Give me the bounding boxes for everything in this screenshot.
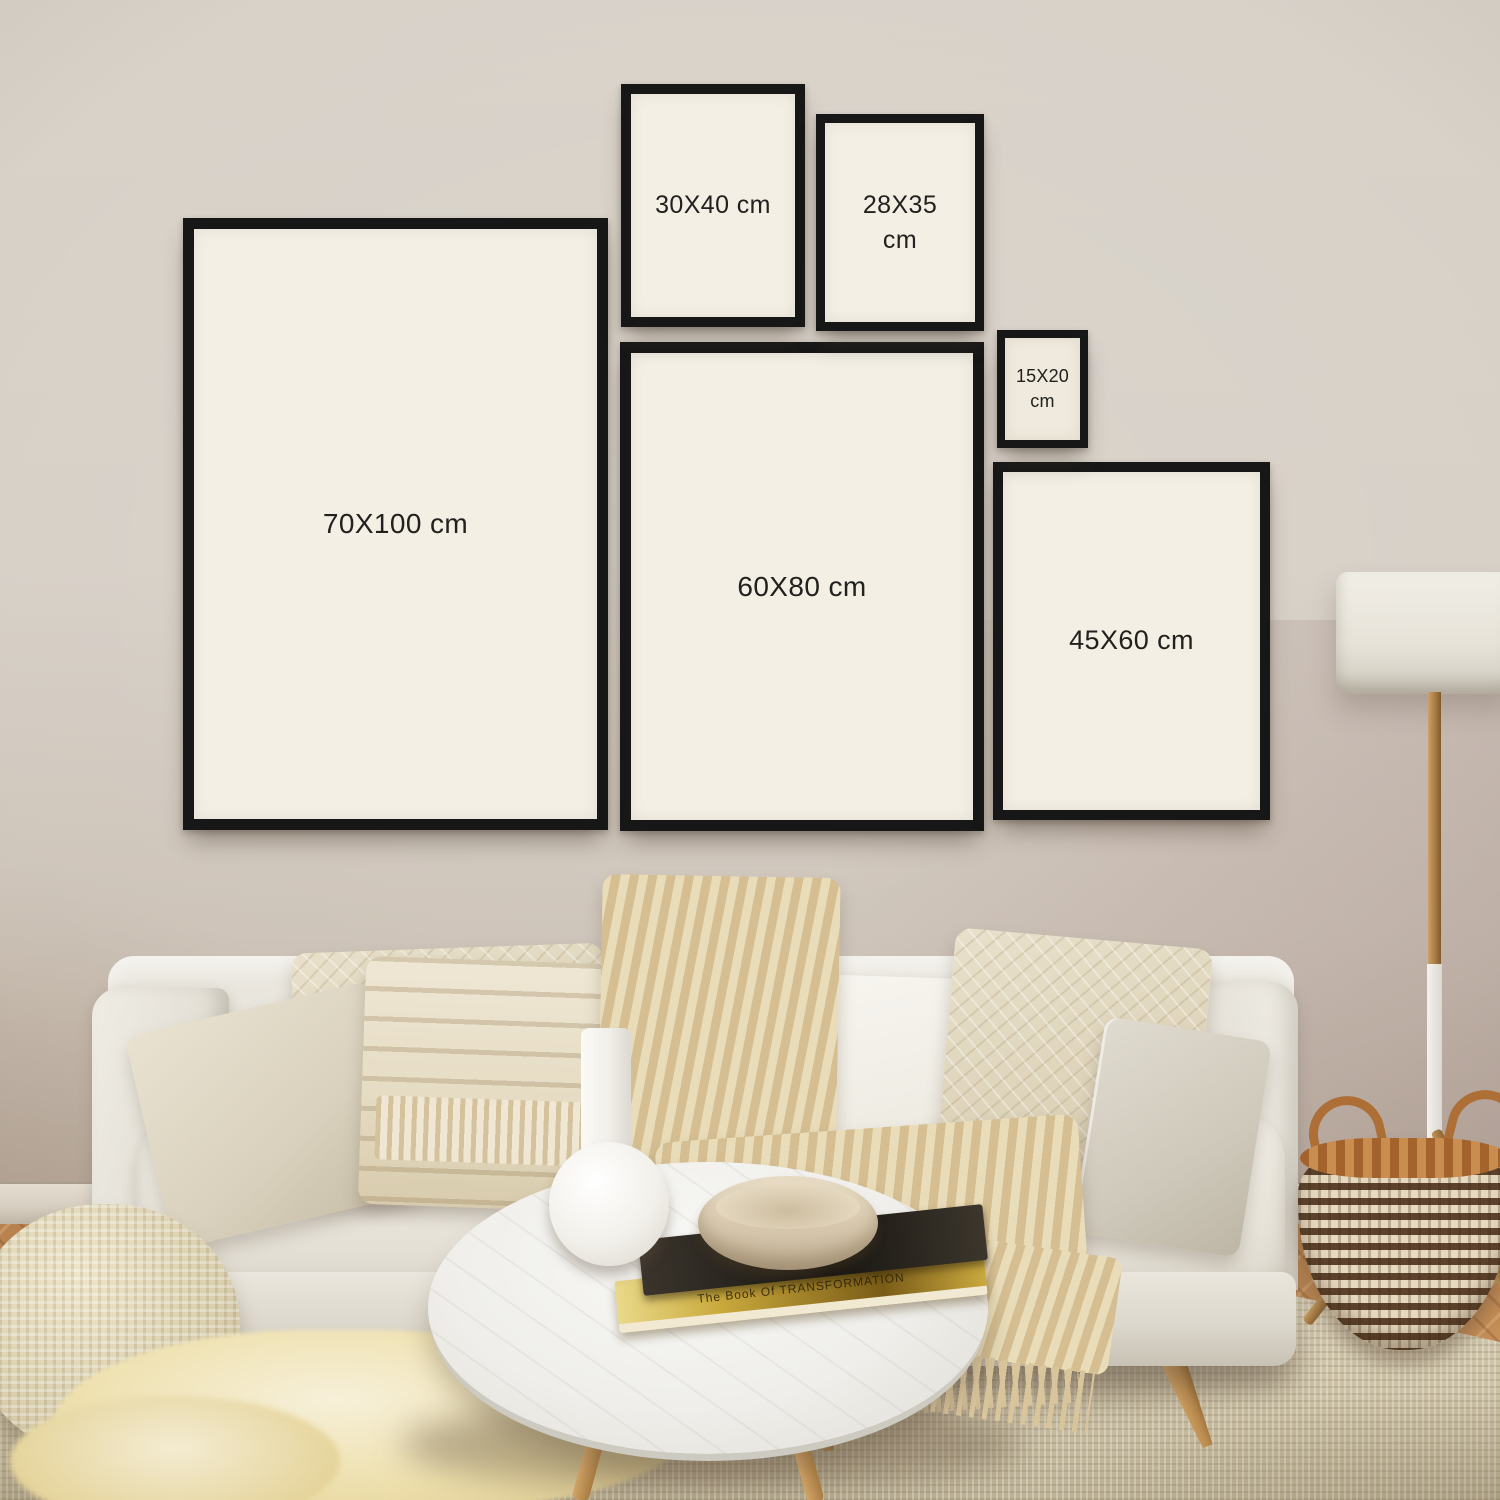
frame-size-label: 15X20 cm: [1005, 338, 1080, 440]
ceramic-bowl: [698, 1176, 878, 1270]
frame-size-label: 60X80 cm: [631, 353, 973, 820]
pillow-fringe: [374, 1095, 593, 1167]
pillow-lumbar-right: [1072, 1016, 1272, 1258]
floor-lamp-shade: [1336, 572, 1500, 694]
frame-60x80: 60X80 cm: [620, 342, 984, 831]
frame-70x100: 70X100 cm: [183, 218, 608, 830]
frame-45x60: 45X60 cm: [993, 462, 1270, 820]
floor-lamp-pole-wood: [1428, 692, 1441, 970]
living-room-frame-size-mockup: 70X100 cm 60X80 cm 45X60 cm 30X40 cm 28X…: [0, 0, 1500, 1500]
frame-30x40: 30X40 cm: [621, 84, 805, 327]
frame-size-label: 70X100 cm: [194, 229, 597, 819]
white-vase: [549, 1142, 669, 1266]
frame-size-label: 45X60 cm: [1003, 472, 1260, 810]
frame-size-label: 30X40 cm: [631, 94, 795, 317]
frame-28x35: 28X35 cm: [816, 114, 984, 331]
frame-15x20: 15X20 cm: [997, 330, 1088, 448]
basket-rim: [1300, 1138, 1500, 1178]
frame-size-label: 28X35 cm: [825, 123, 975, 322]
